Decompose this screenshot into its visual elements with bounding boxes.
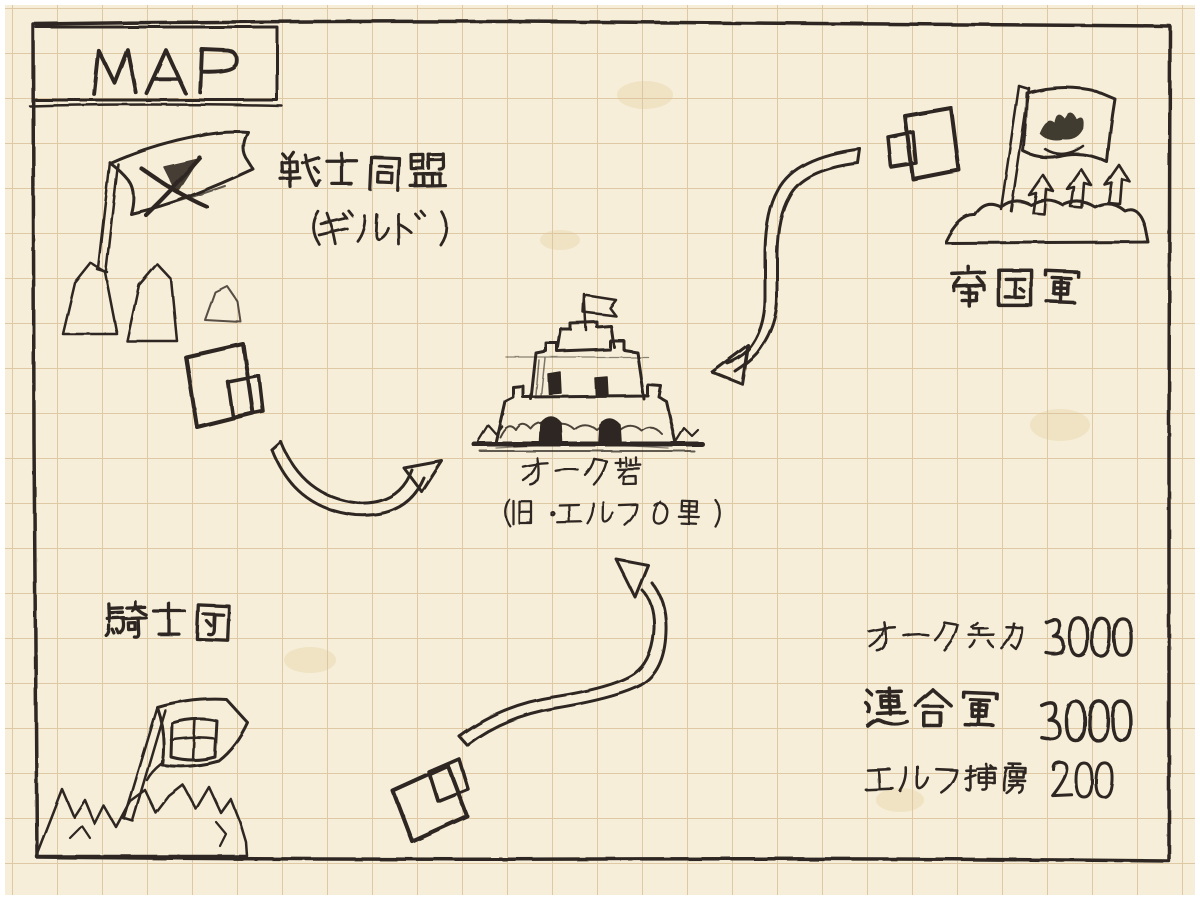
hand-drawn-battle-map: [0, 0, 1200, 900]
scanned-map-page: [0, 0, 1200, 900]
